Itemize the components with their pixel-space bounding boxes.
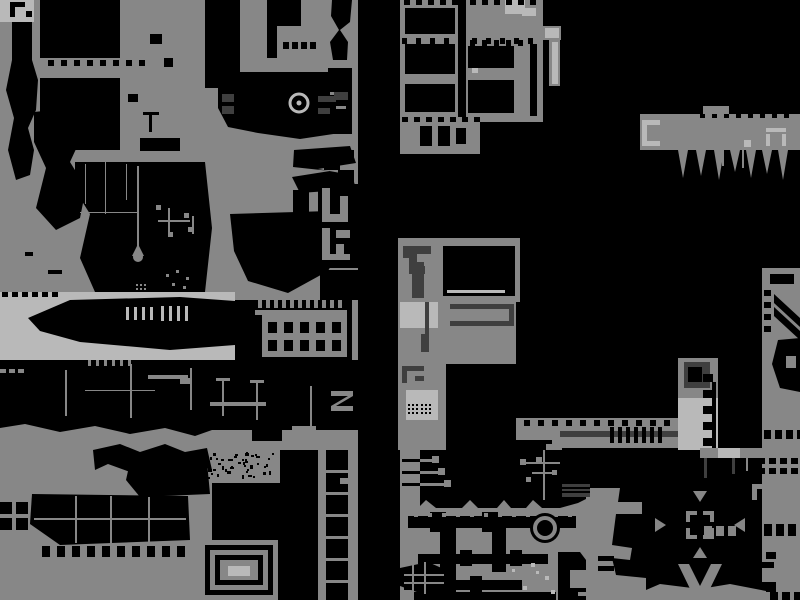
light-mark bbox=[766, 128, 786, 132]
scaffold-holes bbox=[284, 340, 293, 351]
strip-dash bbox=[750, 552, 760, 559]
speckle-noise bbox=[238, 462, 241, 464]
airship-slits bbox=[134, 307, 137, 320]
corner-figure bbox=[26, 11, 32, 17]
wire bbox=[85, 390, 155, 391]
dot-grid bbox=[140, 288, 142, 290]
speckle-noise bbox=[251, 455, 254, 457]
beam bbox=[80, 212, 138, 213]
speckle-noise bbox=[264, 466, 266, 468]
dot-grid bbox=[144, 288, 146, 290]
airship-slits bbox=[177, 306, 180, 321]
tick-row bbox=[96, 360, 99, 366]
speckle-noise bbox=[221, 459, 224, 461]
tick-row bbox=[444, 38, 449, 44]
hanging-pole bbox=[746, 458, 748, 471]
tick-row bbox=[724, 114, 729, 118]
dash-row bbox=[18, 369, 24, 373]
zigzag-small bbox=[402, 366, 424, 371]
hanging-pole bbox=[704, 458, 707, 478]
dash-row bbox=[716, 526, 724, 536]
step-line bbox=[420, 459, 434, 462]
airship-slits bbox=[142, 307, 145, 320]
scaffold-ticks bbox=[322, 300, 326, 308]
tunnel-row bbox=[418, 554, 548, 564]
z-mark bbox=[331, 406, 353, 411]
zigzag-emblem bbox=[412, 262, 424, 298]
airship-slits bbox=[169, 306, 172, 321]
tick-row bbox=[760, 114, 765, 118]
s-tunnel bbox=[338, 170, 354, 177]
dash-row bbox=[72, 546, 80, 557]
path-line bbox=[421, 334, 429, 352]
ladder-line bbox=[562, 487, 590, 489]
dash-row bbox=[126, 60, 132, 66]
speckle-noise bbox=[230, 459, 233, 461]
strip-dashes bbox=[782, 592, 790, 600]
dot-grid bbox=[408, 412, 410, 414]
machine-mark bbox=[318, 108, 330, 114]
antenna-line bbox=[543, 450, 545, 500]
gray-bracket bbox=[752, 484, 757, 500]
block-mark bbox=[128, 94, 138, 102]
wall-dash bbox=[598, 556, 614, 561]
spike-line bbox=[700, 150, 702, 170]
strip-dashes bbox=[758, 458, 765, 464]
nine-patch bbox=[16, 502, 28, 514]
tail-block bbox=[456, 128, 466, 144]
speckle-noise bbox=[210, 457, 212, 460]
strip-dashes bbox=[764, 326, 771, 332]
scaffold-ticks bbox=[290, 300, 294, 308]
dot-grid bbox=[425, 404, 427, 406]
ladder-slits bbox=[610, 427, 614, 443]
dust-dot bbox=[183, 286, 186, 289]
room-block bbox=[405, 84, 455, 112]
step-node bbox=[444, 480, 451, 487]
speckle-noise bbox=[268, 458, 270, 460]
cave-tunnel bbox=[293, 190, 309, 228]
hanging-pole bbox=[310, 386, 312, 430]
scaffold-holes bbox=[332, 340, 341, 351]
speckle-noise bbox=[213, 453, 216, 456]
tick-row bbox=[128, 360, 131, 366]
tick-row bbox=[484, 513, 488, 517]
pole bbox=[85, 164, 86, 204]
tick-row bbox=[650, 420, 656, 426]
arrow-grid bbox=[412, 564, 414, 594]
light-mark bbox=[766, 134, 770, 146]
t-pole bbox=[149, 112, 152, 132]
dot-grid bbox=[412, 404, 414, 406]
tick-row bbox=[22, 292, 28, 297]
tick-row bbox=[88, 360, 91, 366]
emblem-dot bbox=[297, 101, 302, 106]
scaffold-ticks bbox=[298, 300, 302, 308]
tick-row bbox=[506, 0, 512, 5]
dash-row bbox=[301, 42, 307, 49]
tick-row bbox=[442, 513, 446, 517]
tick-row bbox=[52, 292, 58, 297]
tick-row bbox=[120, 360, 123, 366]
tick-row bbox=[622, 420, 628, 426]
shaft-rungs bbox=[326, 514, 348, 517]
step-line bbox=[402, 459, 420, 462]
speckle-noise bbox=[211, 473, 213, 475]
tick-row bbox=[430, 38, 435, 44]
step-line bbox=[402, 471, 420, 474]
world-map bbox=[0, 0, 800, 600]
dash-row bbox=[310, 42, 316, 49]
machine-mark bbox=[222, 106, 234, 114]
ladder-slits bbox=[650, 427, 654, 443]
light-bracket bbox=[642, 141, 660, 146]
antenna-node bbox=[526, 477, 531, 482]
light-speck bbox=[523, 586, 527, 590]
tick-row bbox=[498, 513, 502, 517]
ladder-slits bbox=[618, 427, 622, 443]
step-node bbox=[438, 468, 445, 475]
speckle-noise bbox=[245, 461, 248, 463]
speckle-noise bbox=[225, 469, 227, 472]
strip-dashes bbox=[791, 468, 798, 474]
scaffold-holes bbox=[268, 322, 277, 333]
antenna-node bbox=[556, 442, 562, 448]
tick-row bbox=[608, 420, 614, 426]
shaft-rungs bbox=[326, 470, 348, 473]
light-patch bbox=[400, 302, 438, 328]
speckle-noise bbox=[246, 471, 248, 473]
tick-row bbox=[2, 292, 8, 297]
tail-block bbox=[438, 126, 450, 146]
s-tunnel bbox=[324, 150, 354, 157]
shelf bbox=[336, 106, 346, 109]
droplet bbox=[133, 252, 143, 262]
gate-mark bbox=[156, 205, 161, 210]
dot-grid bbox=[429, 412, 431, 414]
machine-mark bbox=[318, 96, 336, 102]
dot-grid bbox=[416, 412, 418, 414]
scaffold-holes bbox=[284, 322, 293, 333]
tunnel-node bbox=[470, 576, 482, 592]
marker-bracket bbox=[710, 511, 714, 522]
speckle-noise bbox=[242, 459, 244, 461]
dash-row bbox=[177, 546, 185, 557]
hanging-pole bbox=[222, 380, 224, 416]
antenna-node bbox=[536, 457, 542, 463]
tick-row bbox=[524, 420, 530, 426]
tick-row bbox=[438, 117, 444, 122]
speckle-noise bbox=[242, 475, 244, 479]
nine-patch bbox=[0, 502, 12, 514]
dot-grid bbox=[429, 408, 431, 410]
light-patch bbox=[552, 42, 558, 84]
tick-row bbox=[566, 420, 572, 426]
scaffold-ticks bbox=[274, 300, 278, 308]
tick-row bbox=[470, 40, 475, 46]
scaffold-holes bbox=[332, 322, 341, 333]
terrain-column bbox=[400, 450, 420, 508]
tick-row bbox=[712, 114, 717, 118]
tick-row bbox=[470, 0, 476, 5]
corner-figure bbox=[10, 2, 15, 17]
tick-row bbox=[580, 420, 586, 426]
tick-row bbox=[636, 420, 642, 426]
dust-dot bbox=[176, 270, 179, 273]
pole bbox=[105, 162, 106, 214]
shaft-rungs bbox=[326, 580, 348, 583]
wall-dash bbox=[598, 566, 614, 571]
light-speck bbox=[531, 563, 535, 567]
tunnel-col bbox=[492, 528, 506, 572]
tick-row bbox=[426, 117, 432, 122]
dot-grid bbox=[421, 412, 423, 414]
strip-dash bbox=[766, 552, 776, 559]
scaffold-holes bbox=[316, 322, 325, 333]
dot-grid bbox=[144, 284, 146, 286]
scaffold-ticks bbox=[314, 300, 318, 308]
speckle-noise bbox=[257, 463, 259, 465]
dot-grid bbox=[140, 284, 142, 286]
speckle-noise bbox=[243, 462, 245, 465]
hanging-pole bbox=[256, 382, 258, 420]
shaft2-dashes bbox=[703, 406, 713, 414]
scaffold-ticks bbox=[266, 300, 270, 308]
strip-dashes bbox=[794, 592, 800, 600]
scaffold-holes bbox=[300, 322, 309, 333]
tick-row bbox=[12, 292, 18, 297]
tick-row bbox=[772, 114, 777, 118]
strip-dashes bbox=[769, 468, 776, 474]
room-block bbox=[468, 46, 514, 68]
antenna-slit bbox=[267, 0, 277, 58]
tick-row bbox=[404, 0, 410, 5]
dash-row bbox=[87, 546, 95, 557]
shaft2-dashes bbox=[703, 422, 713, 430]
room-block bbox=[405, 44, 455, 74]
step-line bbox=[402, 483, 420, 486]
dot-grid bbox=[412, 408, 414, 410]
tick-row bbox=[470, 513, 474, 517]
speckle-noise bbox=[244, 465, 246, 467]
scaffold-beam bbox=[255, 310, 347, 315]
tick-row bbox=[494, 0, 500, 5]
platform bbox=[210, 402, 266, 406]
dust-dot bbox=[172, 283, 175, 286]
strip-dashes bbox=[776, 524, 784, 536]
maze-wall bbox=[340, 196, 348, 222]
dash-row bbox=[87, 60, 93, 66]
tick-row bbox=[450, 117, 456, 122]
pole bbox=[126, 164, 127, 200]
speckle-noise bbox=[269, 471, 271, 475]
antenna-node bbox=[552, 470, 557, 475]
dash-row bbox=[48, 60, 54, 66]
speckle-noise bbox=[250, 465, 253, 469]
speckle-noise bbox=[266, 464, 268, 467]
tick-row bbox=[112, 360, 115, 366]
dot-grid bbox=[412, 412, 414, 414]
ladder-slits bbox=[626, 427, 630, 443]
dash-row bbox=[162, 546, 170, 557]
dash-row bbox=[42, 546, 50, 557]
antenna-node bbox=[546, 444, 552, 450]
step-line bbox=[420, 471, 440, 474]
speckle-noise bbox=[248, 475, 252, 477]
strip-dashes bbox=[764, 302, 771, 308]
tick-row bbox=[512, 513, 516, 517]
dust-dot bbox=[186, 277, 189, 280]
step-line bbox=[420, 483, 446, 486]
strip-dash bbox=[758, 562, 774, 568]
room-slit bbox=[530, 44, 537, 116]
z-mark bbox=[331, 391, 353, 396]
strip-dashes bbox=[788, 524, 796, 536]
strip-dashes bbox=[780, 458, 787, 464]
nine-patch bbox=[0, 518, 12, 530]
shaft2-slit bbox=[712, 382, 716, 448]
strip-dashes bbox=[764, 430, 771, 439]
airship-slits bbox=[150, 307, 153, 320]
wall-strip bbox=[352, 300, 358, 360]
maze-wall bbox=[322, 254, 350, 260]
mid-room-ledge bbox=[447, 290, 505, 293]
airship-slits bbox=[185, 306, 188, 321]
tick-row bbox=[458, 38, 463, 44]
strip-dashes bbox=[791, 458, 798, 464]
light-patch bbox=[545, 28, 559, 38]
spiral-core bbox=[228, 566, 250, 576]
strip-hole bbox=[786, 356, 796, 368]
tick-row bbox=[528, 38, 533, 44]
tick-row bbox=[748, 114, 753, 118]
tick-row bbox=[784, 114, 789, 118]
strip-dashes bbox=[775, 430, 782, 439]
gray-bracket bbox=[578, 574, 596, 578]
dot-grid bbox=[429, 404, 431, 406]
dash-mark bbox=[48, 270, 62, 274]
dot-grid bbox=[416, 408, 418, 410]
dash-row bbox=[117, 546, 125, 557]
speckle-noise bbox=[217, 474, 219, 477]
maze-wall bbox=[322, 188, 330, 218]
scaffold-ticks bbox=[306, 300, 310, 308]
dash-row bbox=[147, 546, 155, 557]
dot-grid bbox=[408, 408, 410, 410]
terrain-block bbox=[120, 0, 205, 152]
light-mark bbox=[744, 140, 751, 147]
dash-row bbox=[9, 369, 15, 373]
room-block bbox=[468, 80, 514, 113]
tick-row bbox=[538, 420, 544, 426]
gray-bracket bbox=[578, 592, 596, 596]
strip-dashes bbox=[786, 430, 793, 439]
shaft-rungs bbox=[326, 536, 348, 539]
scaffold-holes bbox=[316, 340, 325, 351]
light-patch bbox=[472, 68, 478, 73]
hanging-pole bbox=[190, 368, 192, 410]
tick-row bbox=[456, 513, 460, 517]
strip-dash bbox=[762, 582, 776, 592]
strip-dashes bbox=[764, 524, 772, 536]
airship-slits bbox=[126, 307, 129, 320]
speckle-noise bbox=[272, 453, 274, 455]
scaffold-ticks bbox=[338, 300, 342, 308]
maze-wall bbox=[336, 230, 350, 238]
speckle-noise bbox=[247, 469, 249, 471]
tick-row bbox=[32, 292, 38, 297]
speckle-noise bbox=[235, 454, 238, 456]
strip-dashes bbox=[764, 290, 771, 296]
shaft2-dashes bbox=[703, 390, 713, 398]
shaft-rungs bbox=[326, 558, 348, 561]
airship-slits bbox=[161, 306, 164, 321]
dot-grid bbox=[136, 284, 138, 286]
tunnel-node bbox=[510, 550, 522, 566]
notch bbox=[277, 0, 301, 26]
dot-grid bbox=[421, 408, 423, 410]
antenna-node bbox=[520, 459, 526, 465]
dash-row bbox=[139, 60, 145, 66]
tick-row bbox=[416, 0, 422, 5]
machine-mark bbox=[334, 92, 348, 100]
scaffold-ticks bbox=[282, 300, 286, 308]
gate-mark bbox=[168, 232, 173, 237]
light-speck bbox=[545, 576, 549, 580]
tick-row bbox=[700, 114, 705, 118]
dot-grid bbox=[425, 412, 427, 414]
spike-line bbox=[742, 150, 744, 168]
tick-row bbox=[518, 0, 524, 5]
scaffold-ticks bbox=[330, 300, 334, 308]
shaft2-hole bbox=[688, 367, 702, 382]
grid-line bbox=[34, 518, 186, 520]
ladder-slits bbox=[658, 427, 662, 443]
tick-row bbox=[664, 420, 670, 426]
tick-row bbox=[402, 117, 408, 122]
marker-bracket bbox=[686, 528, 690, 539]
nine-patch bbox=[16, 518, 28, 530]
tick-row bbox=[462, 117, 468, 122]
dot-grid bbox=[136, 288, 138, 290]
tick-row bbox=[428, 0, 434, 5]
strip-dashes bbox=[780, 468, 787, 474]
scaffold-holes bbox=[300, 340, 309, 351]
zigzag-small bbox=[415, 376, 424, 381]
light-speck bbox=[551, 590, 555, 594]
tick-row bbox=[736, 114, 741, 118]
hanging-pole bbox=[65, 370, 67, 416]
dust-dot bbox=[166, 274, 169, 277]
tunnel-node bbox=[460, 550, 472, 566]
speckle-noise bbox=[216, 458, 218, 460]
strip-dashes bbox=[758, 468, 765, 474]
slab-light bbox=[718, 448, 740, 458]
speckle-noise bbox=[213, 469, 216, 471]
ladder-line bbox=[562, 491, 590, 493]
dash-mark bbox=[25, 252, 33, 256]
speckle-noise bbox=[253, 476, 255, 478]
dash-row bbox=[292, 42, 298, 49]
dot-grid bbox=[408, 404, 410, 406]
speckle-noise bbox=[245, 453, 249, 456]
tick-row bbox=[500, 38, 505, 44]
map-viewport bbox=[0, 0, 800, 600]
tick-row bbox=[414, 117, 420, 122]
marker-bracket bbox=[686, 511, 690, 522]
block-mark bbox=[150, 34, 162, 44]
dash-row bbox=[100, 60, 106, 66]
